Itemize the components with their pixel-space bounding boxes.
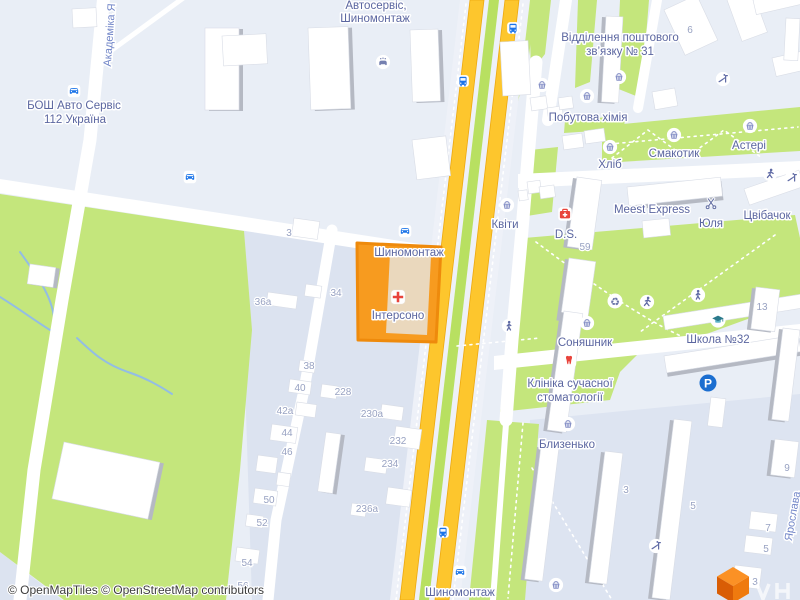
label-asteri: Астері	[732, 140, 766, 152]
pedestrian-icon[interactable]	[691, 288, 705, 302]
building	[558, 96, 574, 110]
label-tire-bottom: Шиномонтаж	[425, 587, 495, 599]
car-repair-icon[interactable]	[399, 225, 412, 238]
building	[72, 8, 97, 28]
house-number: 40	[294, 383, 306, 394]
building	[256, 455, 278, 474]
house-number: 34	[330, 288, 342, 299]
house-number: 38	[303, 361, 315, 372]
building	[707, 397, 725, 428]
building	[518, 190, 528, 201]
playground-icon[interactable]	[716, 72, 730, 86]
house-number: 42а	[277, 406, 294, 417]
house-number: 9	[784, 463, 790, 474]
house-number: 236а	[356, 504, 379, 515]
pedestrian-icon[interactable]	[502, 319, 516, 333]
label-soniashnyk: Соняшник	[558, 337, 613, 349]
playground-icon[interactable]	[649, 539, 663, 553]
label-post-office: Відділення поштового	[561, 32, 679, 44]
label-intersono: Інтерсоно	[372, 310, 425, 322]
house-number: 13	[756, 302, 768, 313]
label-blyzenko: Близенько	[539, 439, 595, 451]
car-wash-icon[interactable]	[376, 55, 390, 69]
label-bosch: БОШ Авто Сервіс	[27, 100, 121, 112]
car-repair-icon[interactable]	[184, 171, 197, 184]
bus-stop-icon[interactable]	[437, 526, 449, 538]
shop-basket-icon[interactable]	[743, 119, 757, 133]
shop-basket-icon[interactable]	[580, 316, 594, 330]
building	[539, 185, 556, 199]
house-number: 52	[256, 518, 268, 529]
shop-basket-icon[interactable]	[667, 128, 681, 142]
pharmacy-icon[interactable]	[558, 207, 572, 221]
playground-icon[interactable]	[785, 171, 799, 185]
label-smakotyk: Смакотик	[649, 148, 701, 160]
car-repair-icon[interactable]	[454, 566, 467, 579]
map-canvas[interactable]: ♻ P Академіка Я Ярослава Автосервіс, Шин…	[0, 0, 800, 600]
recycling-glyph: ♻	[610, 297, 620, 309]
running-icon[interactable]	[640, 295, 654, 309]
label-yulia: Юля	[699, 218, 723, 230]
house-number: 50	[263, 495, 275, 506]
label-school: Школа №32	[686, 334, 749, 346]
medical-cross-icon[interactable]	[391, 290, 405, 304]
parking-icon[interactable]: P	[700, 375, 717, 392]
building	[767, 439, 799, 479]
label-post-office: зв’язку № 31	[586, 46, 654, 58]
label-khlib: Хліб	[598, 159, 622, 171]
house-number: 46	[281, 447, 293, 458]
label-tire-center: Шиномонтаж	[374, 247, 444, 259]
house-number: 228	[335, 387, 352, 398]
house-number: 230а	[361, 409, 384, 420]
label-dental: стоматології	[537, 392, 604, 404]
house-number: 59	[579, 242, 591, 253]
building	[222, 34, 268, 66]
building	[295, 402, 317, 418]
building	[27, 264, 60, 288]
label-autoservice-top: Шиномонтаж	[340, 13, 410, 25]
car-repair-icon[interactable]	[68, 85, 81, 98]
map-base: ♻ P Академіка Я Ярослава Автосервіс, Шин…	[0, 0, 800, 600]
house-number: 3	[623, 485, 629, 496]
house-number: 3	[286, 228, 292, 239]
school-icon[interactable]	[710, 312, 725, 327]
label-household-chem: Побутова хімія	[549, 112, 628, 124]
shop-basket-icon[interactable]	[561, 417, 575, 431]
label-tsvibachok: Цвібачок	[743, 210, 791, 222]
building	[642, 218, 671, 238]
building	[652, 88, 678, 110]
shop-basket-icon[interactable]	[500, 198, 514, 212]
house-number: 54	[241, 558, 253, 569]
building	[380, 404, 404, 421]
building	[386, 487, 412, 507]
house-number: 232	[390, 436, 407, 447]
shop-basket-icon[interactable]	[580, 89, 594, 103]
house-number: 36а	[255, 297, 272, 308]
shop-basket-icon[interactable]	[549, 578, 563, 592]
bus-stop-icon[interactable]	[457, 75, 469, 87]
label-kvity: Квіти	[491, 219, 518, 231]
building	[530, 96, 548, 111]
attribution: © OpenMapTiles © OpenStreetMap contribut…	[8, 583, 264, 597]
parking-letter: P	[704, 377, 712, 391]
house-number: 5	[763, 544, 769, 555]
label-ds: D.S.	[555, 229, 577, 241]
building	[291, 218, 319, 239]
building	[412, 136, 451, 180]
house-number: 6	[687, 25, 693, 36]
running-icon[interactable]	[763, 167, 777, 181]
building	[410, 29, 444, 103]
building	[562, 133, 584, 150]
building	[304, 284, 322, 298]
label-autoservice-top: Автосервіс,	[345, 0, 406, 12]
building	[500, 41, 531, 96]
house-number: 234	[382, 459, 399, 470]
building	[276, 472, 291, 487]
shop-basket-icon[interactable]	[612, 70, 626, 84]
building	[308, 27, 355, 111]
recycling-icon[interactable]: ♻	[608, 294, 623, 309]
bus-stop-icon[interactable]	[507, 22, 519, 34]
building	[784, 18, 800, 61]
label-bosch: 112 Україна	[44, 114, 107, 126]
shop-basket-icon[interactable]	[603, 140, 617, 154]
dentist-icon[interactable]	[562, 353, 576, 367]
label-meest: Meest Express	[614, 204, 690, 216]
house-number: 7	[765, 523, 771, 534]
house-number: 44	[281, 428, 293, 439]
label-dental: Клініка сучасної	[527, 378, 613, 390]
shop-basket-icon[interactable]	[535, 78, 549, 92]
house-number: 5	[690, 501, 696, 512]
building	[749, 511, 778, 532]
building	[584, 128, 606, 144]
park	[0, 194, 252, 600]
